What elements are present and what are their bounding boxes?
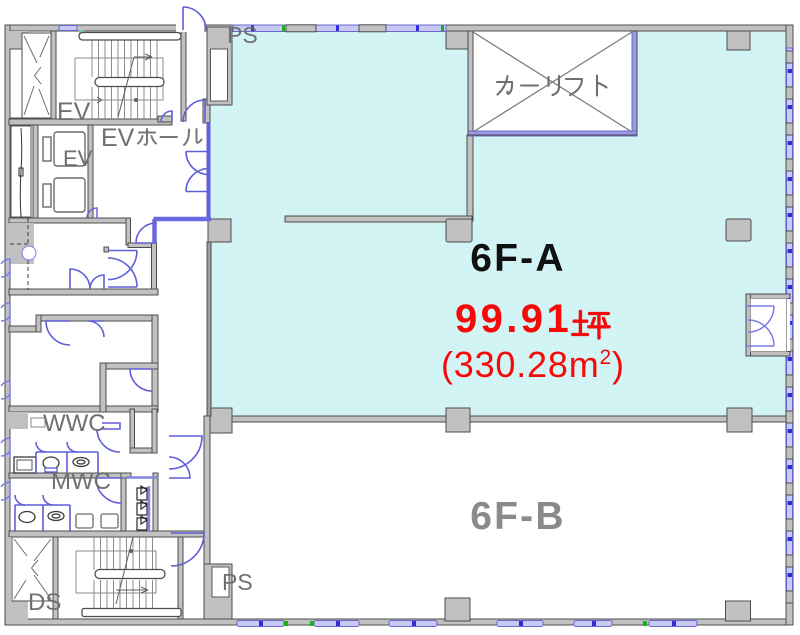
svg-text:EV: EV — [63, 146, 93, 171]
svg-text:MWC: MWC — [51, 468, 111, 495]
svg-text:6F-A: 6F-A — [470, 237, 565, 280]
svg-text:6F-B: 6F-B — [470, 495, 565, 538]
svg-text:PS: PS — [227, 22, 258, 48]
svg-text:(330.28m2): (330.28m2) — [441, 344, 625, 385]
svg-text:WWC: WWC — [43, 410, 106, 437]
svg-text:DS: DS — [28, 589, 61, 616]
svg-text:99.91: 99.91 — [455, 297, 572, 341]
svg-text:PS: PS — [222, 569, 253, 595]
svg-text:EV: EV — [57, 98, 91, 126]
svg-text:EV: EV — [101, 124, 135, 152]
